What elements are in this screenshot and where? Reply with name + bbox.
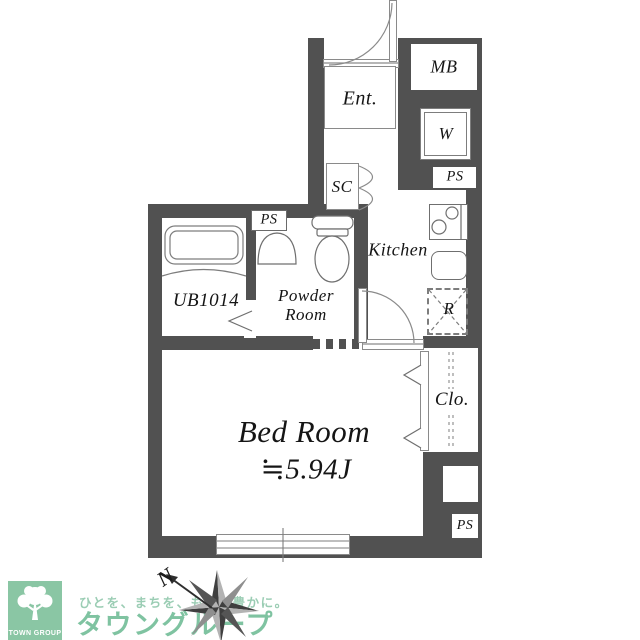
kitchen-door-arc [362,291,414,343]
closet-label: Clo. [433,389,471,411]
ps-label-middle: PS [260,212,277,229]
bathtub-inner [170,231,238,259]
bedroom-size-label: ≒5.94J [261,452,352,487]
burner-icon [432,220,446,234]
basin-icon [258,233,296,264]
bath-edge-curve [162,270,246,277]
shoe-closet-bifold-icon [359,166,373,210]
bathroom-folding-door-icon [229,311,252,331]
toilet-lid-icon [317,229,348,236]
toilet-tank-icon [312,216,353,229]
closet-door-arrow-icon [404,365,421,385]
floor-plan-page: Ent. MB W PS SC Kitchen PS UB1014 Powder… [0,0,640,640]
burner-icon [446,207,458,219]
town-group-logo: TOWN GROUP [8,581,62,640]
shoe-closet-label: SC [332,177,353,197]
entry-door-arc [329,3,392,65]
tree-icon [8,581,62,629]
kitchen-label: Kitchen [368,240,428,261]
closet-door-arrow-icon [404,428,421,448]
bathtub-icon [165,226,243,264]
bedroom-label: Bed Room [238,414,370,450]
ps-label-bottom: PS [457,518,474,534]
toilet-bowl-icon [315,236,349,282]
washer-label: W [439,124,454,144]
bathroom-label: UB1014 [173,290,239,312]
entry-label: Ent. [343,88,378,111]
logo-company-text: TOWN GROUP [9,630,62,637]
powder-room-label: Powder Room [269,286,343,324]
meter-box-label: MB [431,57,458,78]
ps-label-top: PS [446,169,463,186]
refrigerator-label: R [444,299,455,319]
